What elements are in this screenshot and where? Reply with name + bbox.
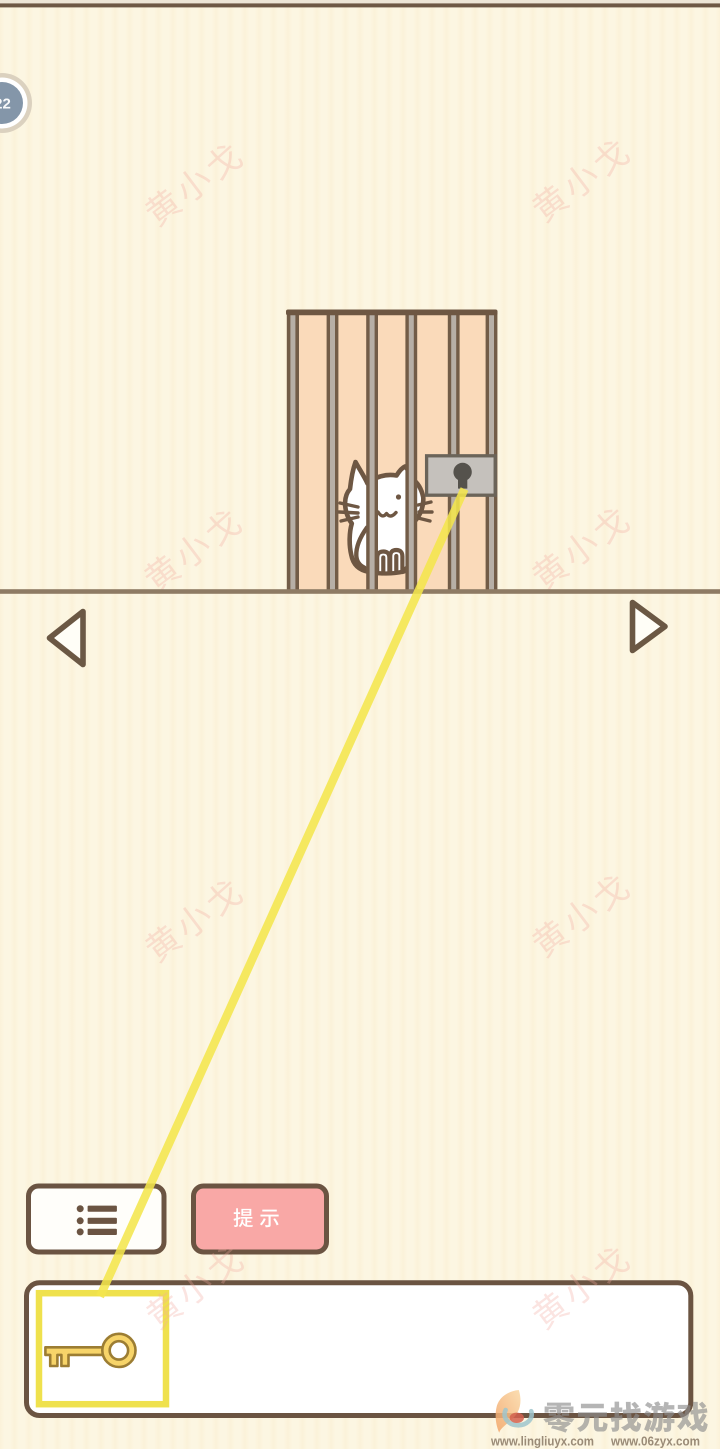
svg-text:www.lingliuyx.com: www.lingliuyx.com [490,1435,594,1449]
svg-text:22: 22 [0,96,11,113]
svg-text:www.06zyx.com: www.06zyx.com [610,1435,700,1449]
